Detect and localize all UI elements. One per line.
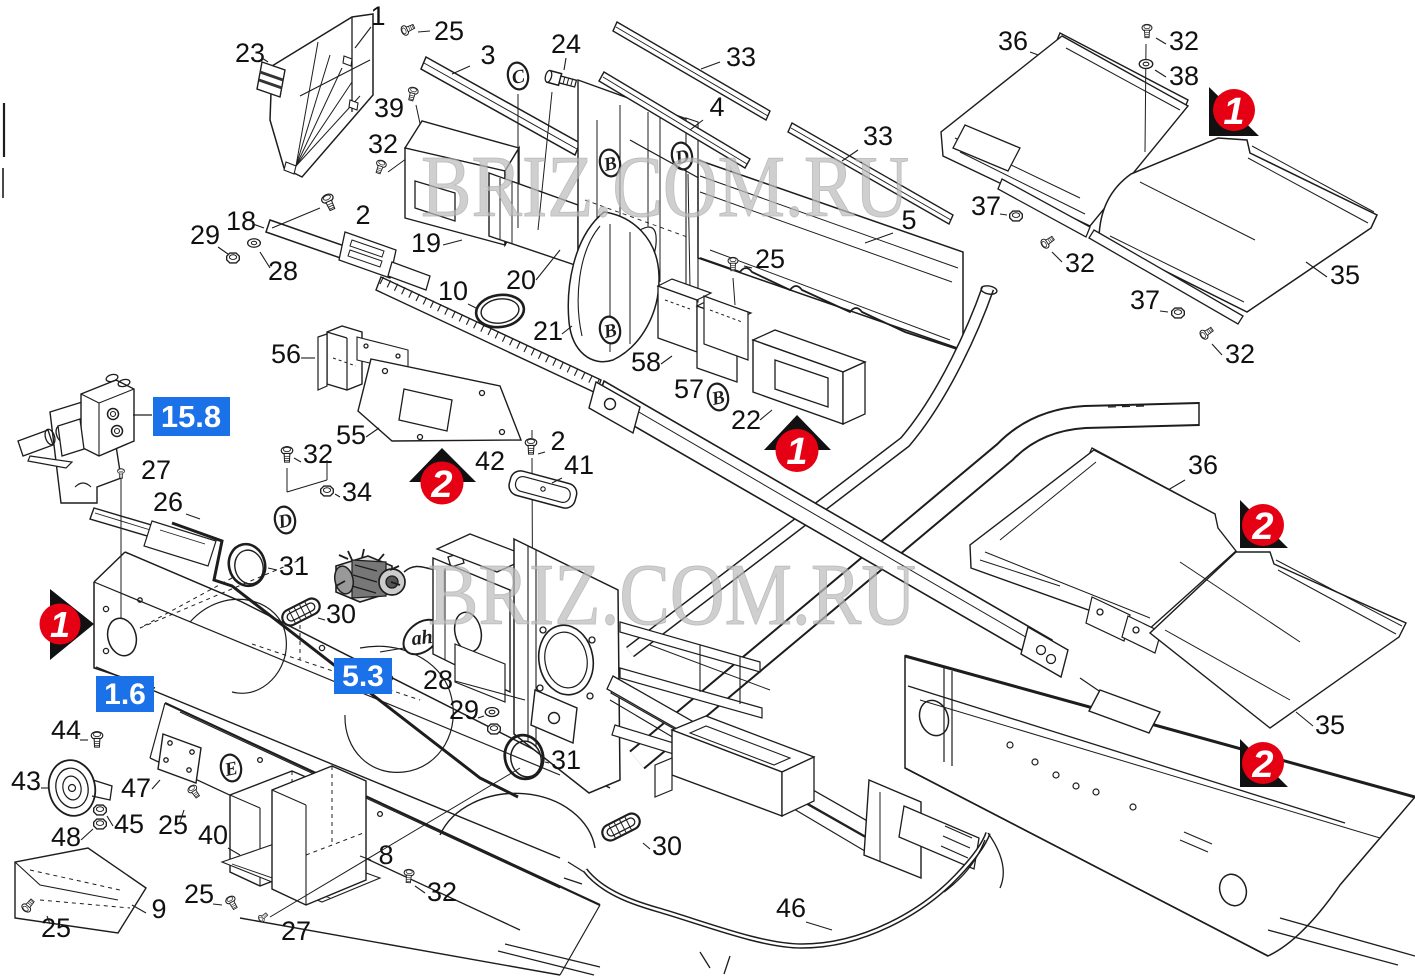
svg-text:2: 2 (1251, 744, 1273, 786)
svg-text:32: 32 (1169, 26, 1199, 56)
svg-text:35: 35 (1315, 710, 1345, 740)
svg-text:9: 9 (151, 894, 166, 924)
svg-text:20: 20 (506, 265, 536, 295)
svg-text:57: 57 (674, 374, 704, 404)
svg-text:1: 1 (786, 431, 807, 473)
svg-text:42: 42 (475, 446, 505, 476)
svg-text:37: 37 (1130, 285, 1160, 315)
svg-text:34: 34 (342, 477, 372, 507)
svg-text:5.3: 5.3 (342, 660, 384, 693)
svg-text:2: 2 (430, 464, 452, 506)
svg-text:30: 30 (326, 599, 356, 629)
svg-text:25: 25 (158, 810, 188, 840)
svg-text:21: 21 (533, 316, 563, 346)
svg-text:27: 27 (141, 455, 171, 485)
svg-text:35: 35 (1330, 260, 1360, 290)
svg-text:32: 32 (1225, 339, 1255, 369)
svg-text:44: 44 (51, 715, 81, 745)
svg-text:28: 28 (423, 665, 453, 695)
svg-text:25: 25 (184, 879, 214, 909)
svg-text:25: 25 (434, 16, 464, 46)
svg-text:2: 2 (1251, 506, 1273, 548)
svg-text:29: 29 (190, 220, 220, 250)
svg-text:1: 1 (370, 1, 385, 31)
svg-text:1: 1 (50, 604, 70, 645)
svg-text:32: 32 (303, 439, 333, 469)
svg-text:56: 56 (271, 339, 301, 369)
svg-text:23: 23 (235, 38, 265, 68)
svg-text:55: 55 (336, 420, 366, 450)
svg-text:28: 28 (268, 256, 298, 286)
svg-text:2: 2 (355, 200, 370, 230)
svg-text:31: 31 (551, 745, 581, 775)
svg-text:BRIZ.COM.RU: BRIZ.COM.RU (428, 547, 916, 644)
svg-text:10: 10 (438, 276, 468, 306)
svg-text:4: 4 (709, 92, 724, 122)
svg-text:40: 40 (198, 820, 228, 850)
svg-text:25: 25 (41, 913, 71, 943)
svg-text:3: 3 (480, 40, 495, 70)
svg-text:18: 18 (226, 206, 256, 236)
svg-text:41: 41 (564, 450, 594, 480)
svg-text:26: 26 (153, 487, 183, 517)
svg-text:45: 45 (114, 809, 144, 839)
svg-text:24: 24 (551, 29, 581, 59)
svg-text:46: 46 (776, 893, 806, 923)
svg-text:30: 30 (652, 831, 682, 861)
svg-text:33: 33 (726, 42, 756, 72)
svg-text:43: 43 (11, 766, 41, 796)
svg-text:32: 32 (1065, 248, 1095, 278)
svg-text:15.8: 15.8 (161, 399, 221, 434)
svg-text:22: 22 (731, 405, 761, 435)
svg-text:25: 25 (755, 244, 785, 274)
svg-text:39: 39 (374, 93, 404, 123)
svg-text:31: 31 (279, 551, 309, 581)
svg-text:27: 27 (281, 916, 311, 946)
svg-text:BRIZ.COM.RU: BRIZ.COM.RU (421, 139, 909, 236)
svg-text:58: 58 (631, 347, 661, 377)
svg-text:1.6: 1.6 (104, 678, 146, 711)
svg-text:36: 36 (998, 26, 1028, 56)
svg-text:36: 36 (1188, 450, 1218, 480)
svg-text:29: 29 (449, 695, 479, 725)
svg-text:32: 32 (368, 129, 398, 159)
svg-text:48: 48 (51, 822, 81, 852)
svg-text:32: 32 (427, 877, 457, 907)
svg-text:38: 38 (1169, 61, 1199, 91)
svg-text:1: 1 (1223, 91, 1244, 133)
svg-text:37: 37 (971, 191, 1001, 221)
svg-text:47: 47 (121, 773, 151, 803)
